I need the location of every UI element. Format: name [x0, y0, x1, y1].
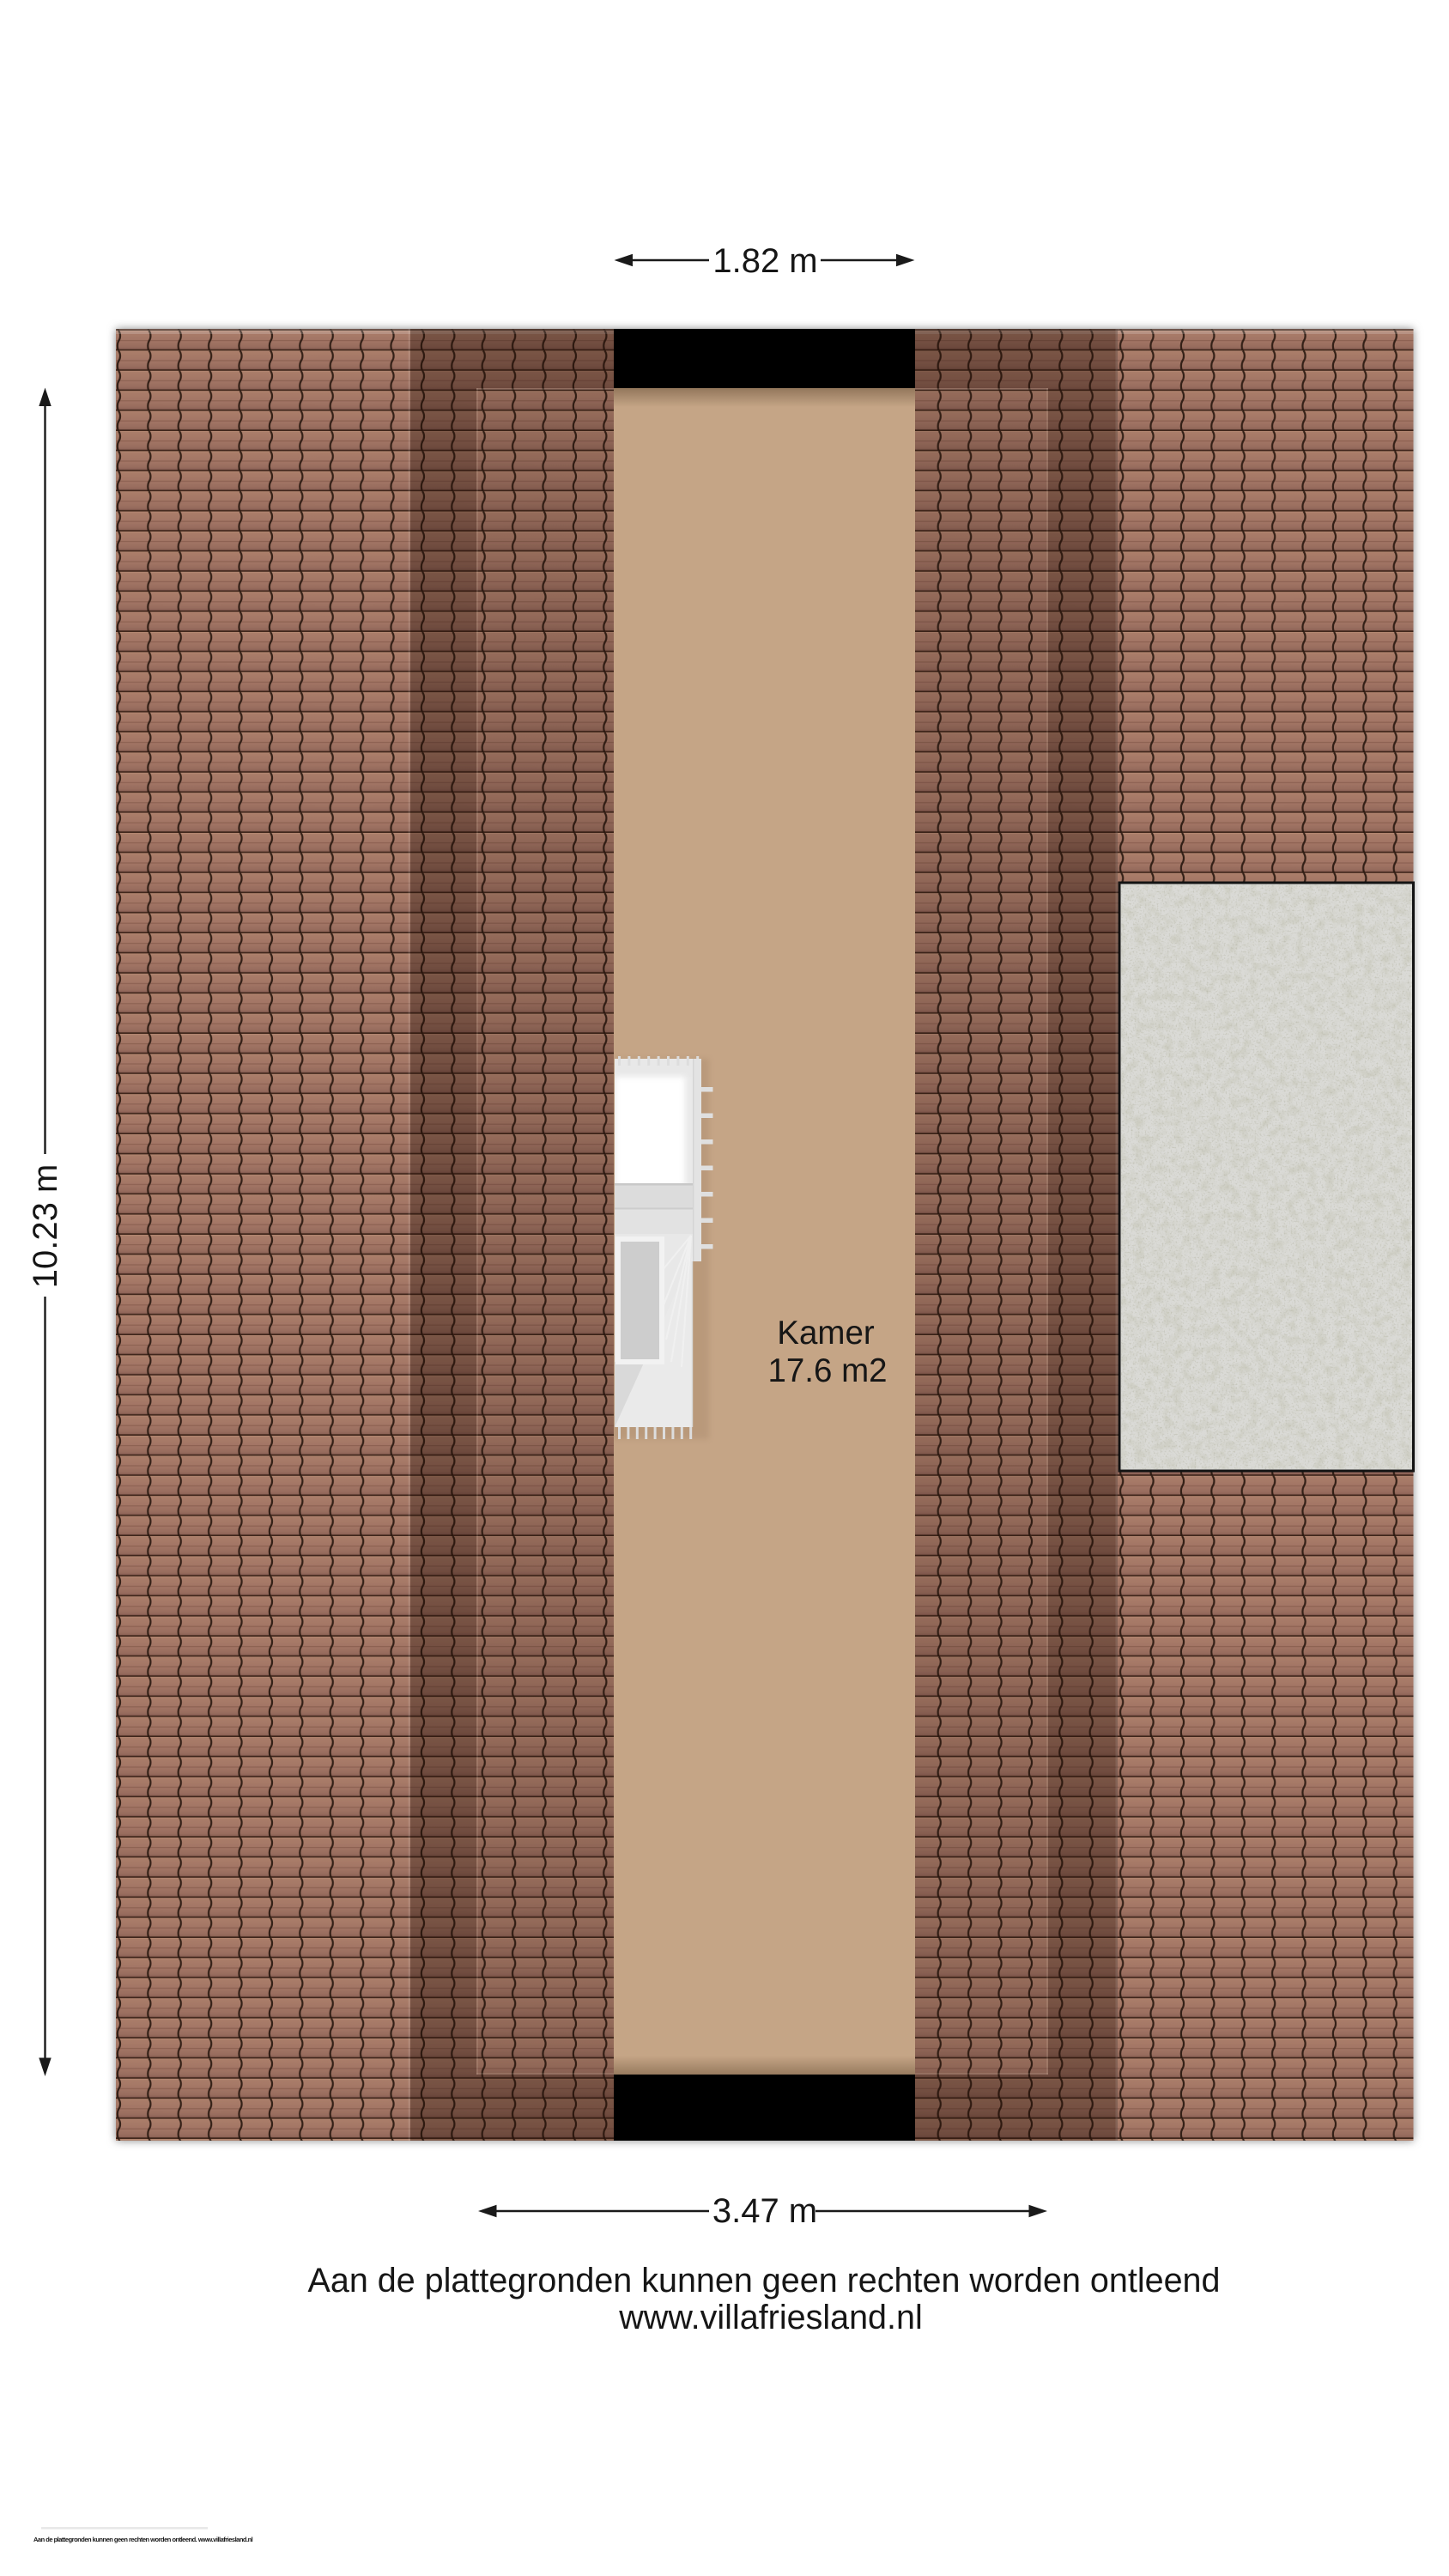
svg-text:Aan de plattegronden kunnen ge: Aan de plattegronden kunnen geen rechten…: [308, 2262, 1221, 2300]
svg-text:3.47 m: 3.47 m: [712, 2192, 817, 2230]
svg-text:17.6 m2: 17.6 m2: [767, 1352, 887, 1389]
svg-text:Aan de plattegronden kunnen ge: Aan de plattegronden kunnen geen rechten…: [33, 2536, 253, 2543]
svg-text:Kamer: Kamer: [777, 1315, 875, 1352]
svg-text:1.82 m: 1.82 m: [712, 242, 817, 280]
svg-text:www.villafriesland.nl: www.villafriesland.nl: [618, 2299, 922, 2336]
svg-text:10.23 m: 10.23 m: [27, 1164, 64, 1289]
